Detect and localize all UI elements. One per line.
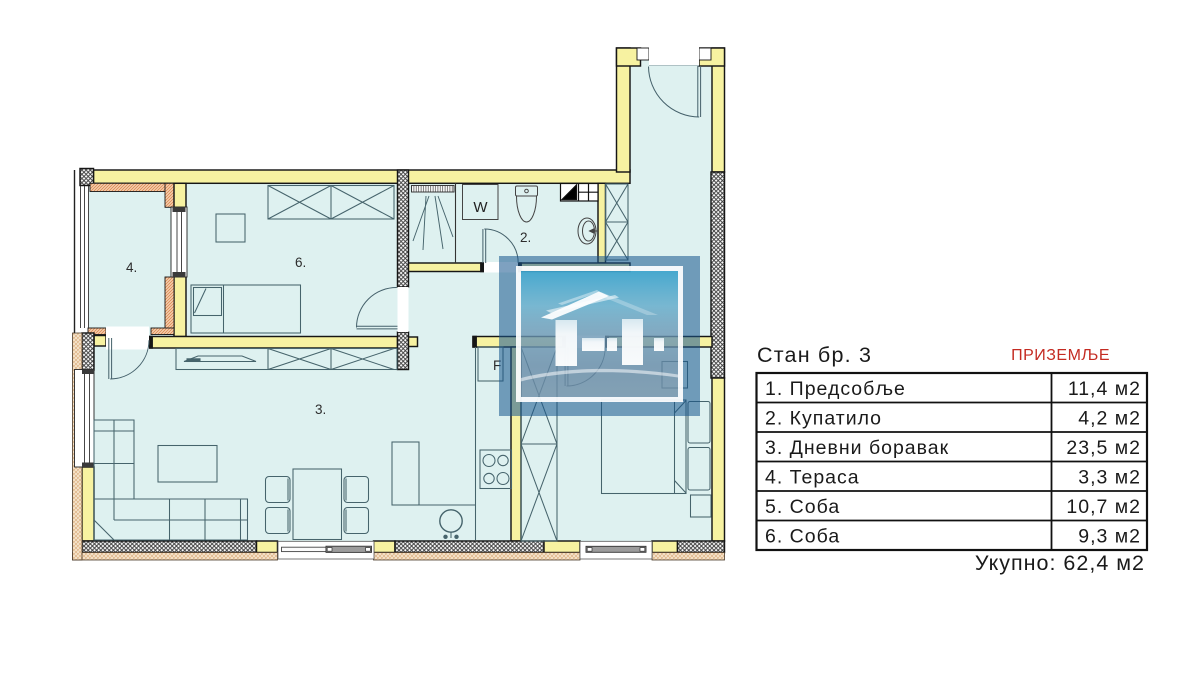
svg-text:11,4 м2: 11,4 м2 bbox=[1068, 378, 1141, 400]
svg-text:6.: 6. bbox=[295, 255, 306, 270]
svg-text:4,2 м2: 4,2 м2 bbox=[1078, 408, 1141, 430]
svg-text:Стан бр. 3: Стан бр. 3 bbox=[757, 343, 872, 367]
svg-text:2.: 2. bbox=[520, 230, 531, 245]
svg-text:3,3 м2: 3,3 м2 bbox=[1078, 467, 1141, 489]
svg-text:3.: 3. bbox=[315, 402, 326, 417]
svg-text:23,5 м2: 23,5 м2 bbox=[1066, 437, 1141, 459]
svg-text:2. Купатило: 2. Купатило bbox=[765, 408, 882, 430]
svg-text:9,3 м2: 9,3 м2 bbox=[1078, 526, 1141, 548]
svg-text:W: W bbox=[473, 199, 488, 216]
svg-text:4. Тераса: 4. Тераса bbox=[765, 467, 860, 489]
svg-text:Укупно: 62,4 м2: Укупно: 62,4 м2 bbox=[975, 551, 1145, 575]
svg-text:10,7 м2: 10,7 м2 bbox=[1066, 496, 1141, 518]
svg-text:6. Соба: 6. Соба bbox=[765, 526, 840, 548]
svg-text:1. Предсобље: 1. Предсобље bbox=[765, 378, 906, 400]
svg-text:ПРИЗЕМЉЕ: ПРИЗЕМЉЕ bbox=[1011, 347, 1110, 364]
svg-text:5. Соба: 5. Соба bbox=[765, 496, 840, 518]
svg-text:4.: 4. bbox=[126, 260, 137, 275]
svg-text:3. Дневни боравак: 3. Дневни боравак bbox=[765, 437, 949, 459]
